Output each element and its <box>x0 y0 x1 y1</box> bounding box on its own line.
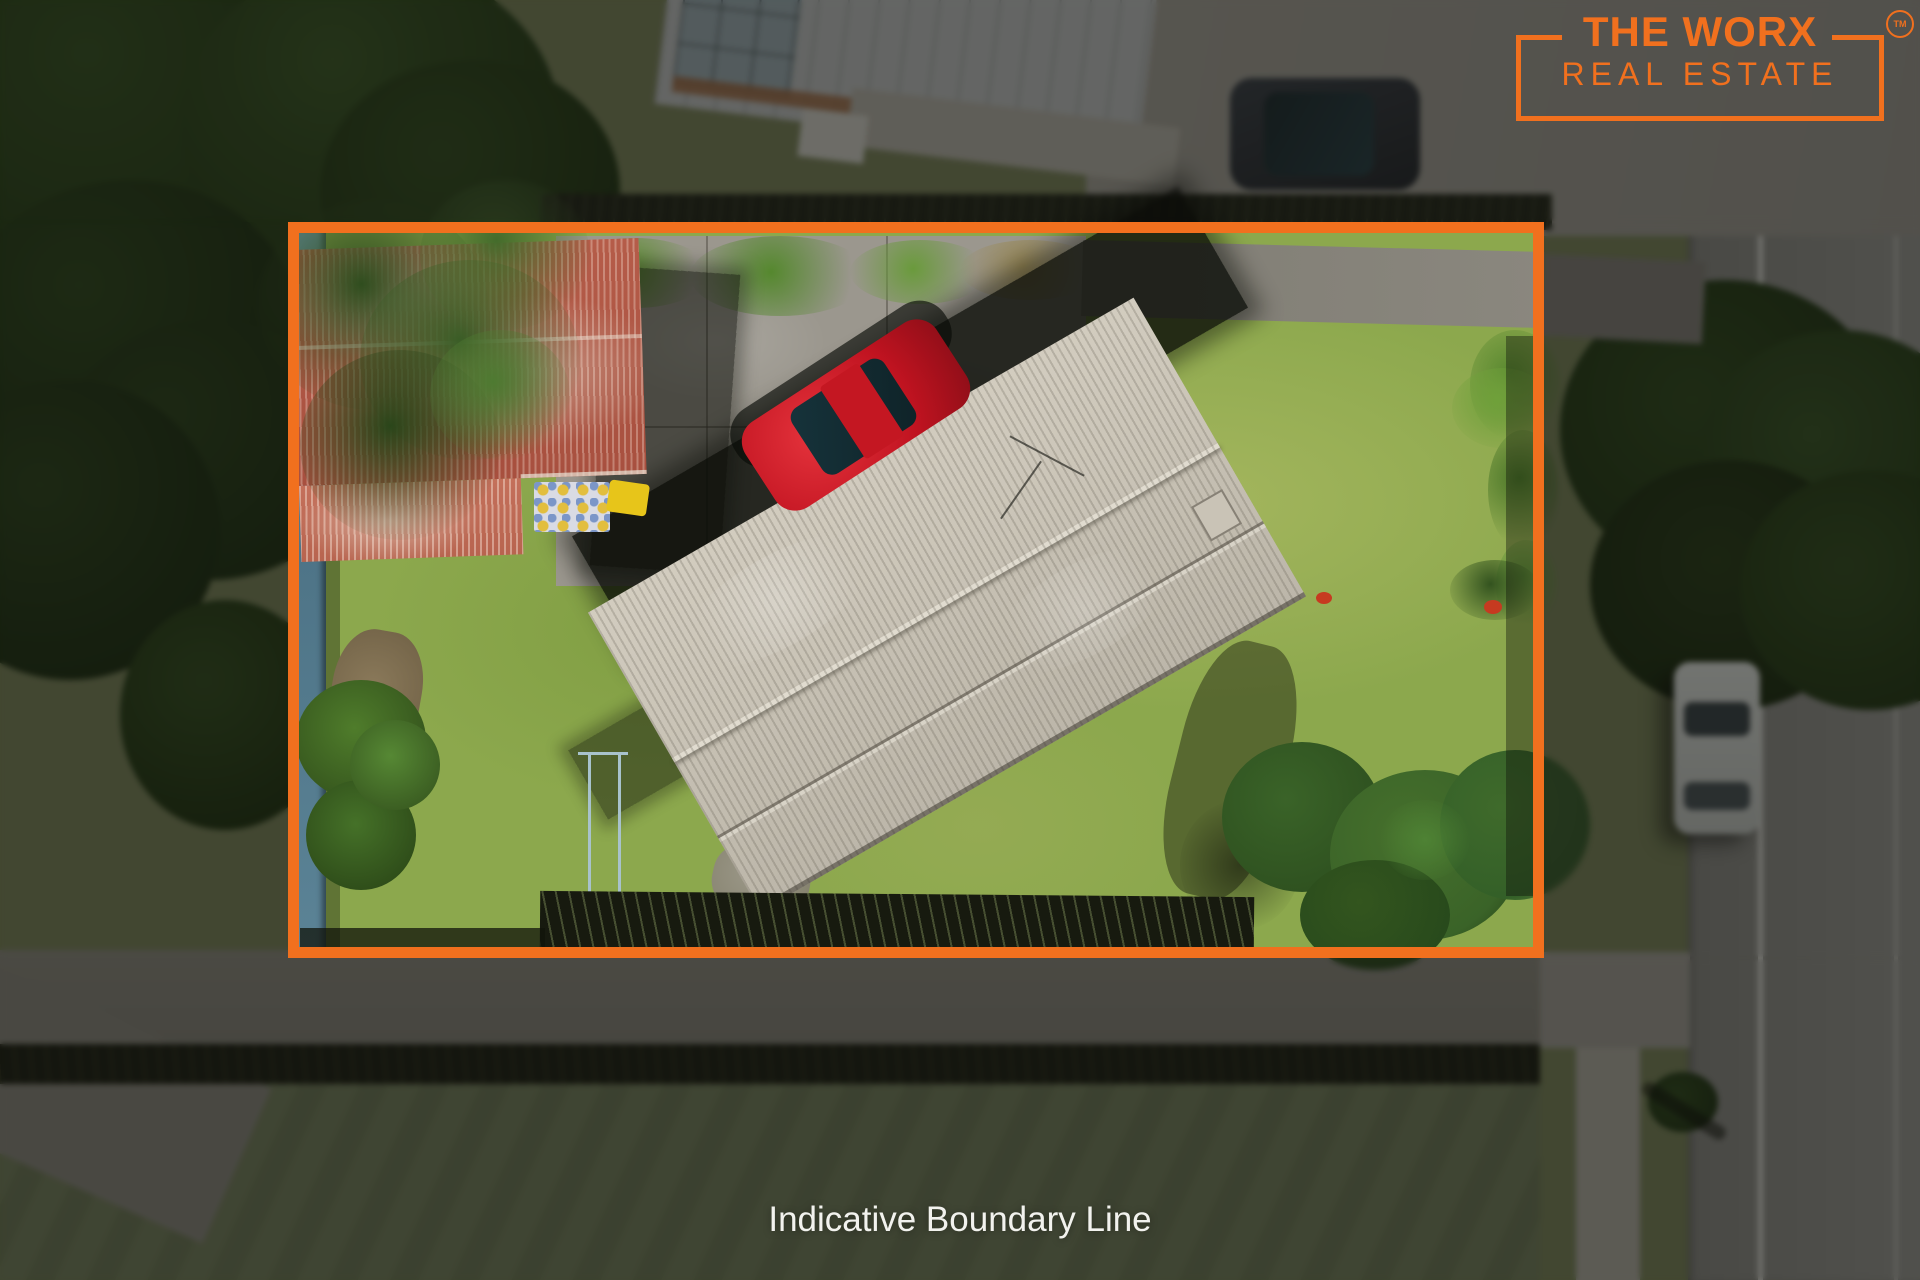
trademark-badge: TM <box>1886 10 1914 38</box>
dim-overlay-right <box>1544 222 1920 958</box>
property-aerial-marketing-image: THE WORX REAL ESTATE TM Indicative Bound… <box>0 0 1920 1280</box>
logo-frame-bottom <box>1516 116 1884 121</box>
brand-logo: THE WORX REAL ESTATE <box>1500 0 1920 140</box>
brand-name: THE WORX <box>1516 10 1884 54</box>
indicative-boundary-rectangle <box>288 222 1544 958</box>
boundary-caption: Indicative Boundary Line <box>0 1200 1920 1240</box>
brand-tagline: REAL ESTATE <box>1516 56 1884 92</box>
dim-overlay-left <box>0 222 288 958</box>
